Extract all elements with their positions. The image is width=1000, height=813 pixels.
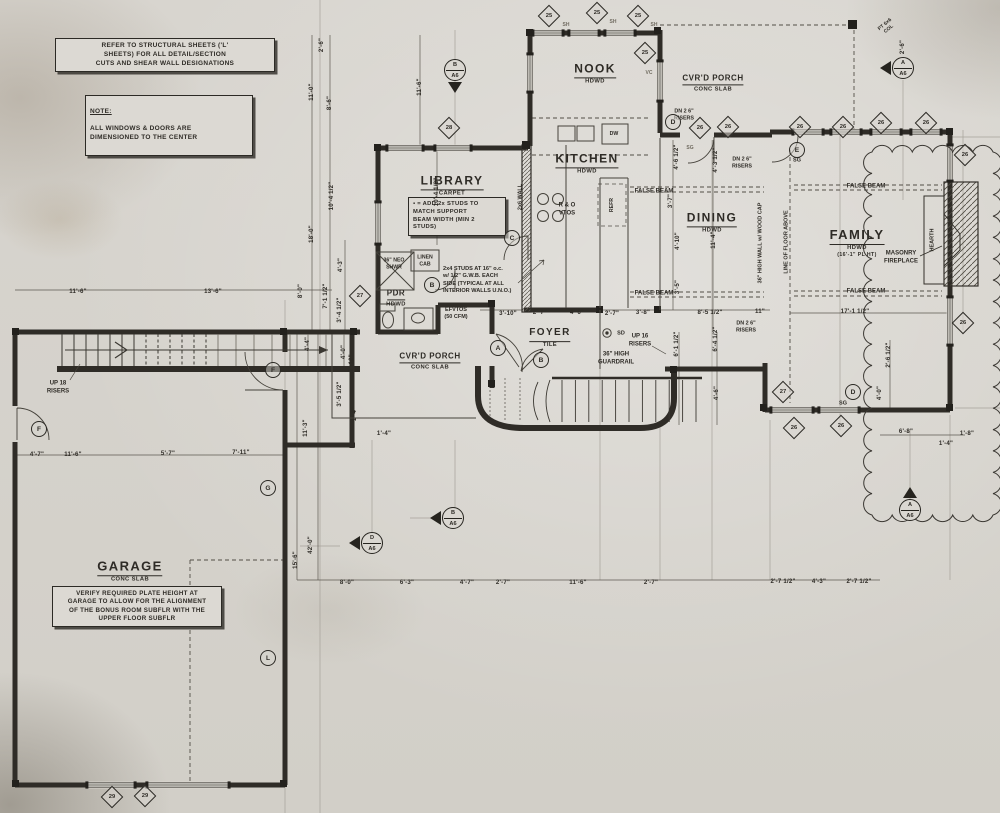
- window-tag-number: 26: [958, 148, 972, 162]
- dimension-label: 1'-4": [351, 407, 359, 421]
- annotation: 36" HIGH WALL w/ WOOD CAP: [758, 203, 765, 284]
- door-tag-c: C: [504, 230, 520, 246]
- dimension-label: 4'-7": [30, 451, 44, 459]
- room-floor-finish: CARPET: [421, 190, 484, 197]
- room-name: KITCHEN: [555, 151, 618, 168]
- section-sheet: A6: [362, 546, 382, 552]
- dimension-label: 4'-3": [337, 258, 345, 272]
- dashed-lines: [190, 25, 942, 783]
- section-letter: D: [362, 535, 382, 541]
- section-sheet: A6: [893, 71, 913, 77]
- annotation: VC: [646, 70, 653, 76]
- dimension-label: 6'-3": [400, 579, 414, 587]
- windows-doors-note: NOTE: ALL WINDOWS & DOORS ARE DIMENSIONE…: [85, 95, 253, 156]
- section-letter: A: [900, 502, 920, 508]
- section-marker-b-a6: BA6: [442, 507, 464, 529]
- annotation: 2x6 WALL: [518, 184, 525, 210]
- section-flag: [880, 61, 891, 75]
- door-tag-e: E: [789, 142, 805, 158]
- dimension-label: 3'-10": [499, 310, 517, 318]
- room-name: DINING: [687, 210, 737, 227]
- dimension-label: 3'-7": [667, 194, 675, 208]
- annotation: DW: [610, 131, 619, 138]
- room-name: FOYER: [529, 327, 570, 342]
- dimension-label: 2'-6": [899, 40, 907, 54]
- dimension-label: 4'-6 1/2": [673, 144, 681, 169]
- note-title: NOTE:: [90, 108, 248, 117]
- dimension-label: 3'-8": [636, 309, 650, 317]
- dimension-label: 3'-5 1/2": [336, 381, 344, 406]
- dimension-label: 13'-6": [204, 288, 222, 296]
- annotation: LINEN CAB: [417, 255, 433, 268]
- annotation: 36" NEO SHWR: [384, 258, 405, 271]
- room-label-kitchen: KITCHENHDWD: [555, 148, 618, 175]
- annotation: FALSE BEAM: [635, 290, 674, 298]
- room-floor-finish: HDWD: [830, 245, 885, 252]
- dimension-label: 4'-6": [570, 309, 584, 317]
- dimension-label: 11'-4": [710, 231, 718, 248]
- room-name: GARAGE: [97, 558, 162, 576]
- annotation: UP 16 RISERS: [629, 334, 651, 349]
- room-floor-finish: HDWD: [555, 168, 618, 175]
- dimension-label: 3'-4 1/2": [336, 297, 344, 322]
- dimension-label: 1'-8": [960, 430, 974, 438]
- room-label-cvr-d-porch: CVR'D PORCHCONC SLAB: [399, 344, 460, 371]
- dimension-label: 2'-7 1/2": [770, 578, 795, 586]
- section-flag: [430, 511, 441, 525]
- door-tag-f: F: [31, 421, 47, 437]
- section-sheet: A6: [443, 521, 463, 527]
- room-floor-finish: CONC SLAB: [399, 364, 460, 371]
- annotation: SH: [610, 19, 617, 25]
- dimension-label: 11'-6": [64, 451, 81, 459]
- dimension-label: 2'-7": [496, 579, 510, 587]
- room-label-cvr-d-porch: CVR'D PORCHCONC SLAB: [682, 66, 743, 93]
- dimension-label: 4'-3": [812, 578, 826, 586]
- window-tag-number: 28: [442, 121, 456, 135]
- door-tag-f: F: [265, 362, 281, 378]
- dimension-label: 17'-1 1/2": [841, 308, 870, 316]
- dimension-label: 6'-1 1/2": [673, 331, 681, 356]
- window-tag-number: 25: [542, 9, 556, 23]
- window-tag-number: 25: [590, 6, 604, 20]
- dimension-label: 3'-5": [674, 280, 682, 294]
- room-floor-finish: HDWD: [574, 78, 616, 85]
- floorplan-sheet: REFER TO STRUCTURAL SHEETS ('L' SHEETS) …: [0, 0, 1000, 813]
- dimension-label: 2'-7 1/2": [846, 578, 871, 586]
- annotation: DN 2 6" RISERS: [732, 156, 752, 170]
- dimension-label: 4'-3 1/2": [712, 147, 720, 172]
- window-tag-number: 29: [105, 790, 119, 804]
- annotation: 36" HIGH GUARDRAIL: [598, 352, 634, 367]
- dimension-label: 2'-7": [605, 310, 619, 318]
- room-floor-finish: CONC SLAB: [97, 577, 162, 584]
- dimension-label: 5'-7": [161, 450, 175, 458]
- annotation: SD: [617, 331, 625, 338]
- annotation: SH: [651, 22, 658, 28]
- section-flag: [903, 487, 917, 498]
- room-floor-finish: HDWD: [386, 301, 406, 308]
- room-label-library: LIBRARYCARPET: [421, 170, 484, 197]
- dimension-label: 10'-4 1/2": [433, 178, 441, 207]
- room-name: CVR'D PORCH: [399, 351, 460, 363]
- window-tag-number: 26: [693, 121, 707, 135]
- dimension-label: 11'-6": [416, 78, 424, 95]
- window-tag-number: 26: [834, 419, 848, 433]
- room-label-pdr: PDRHDWD: [386, 281, 406, 308]
- dimension-label: 6'-8": [899, 428, 913, 436]
- door-tag-b: B: [424, 277, 440, 293]
- section-marker-a-a6: AA6: [892, 57, 914, 79]
- dimension-label: 7'-11": [232, 449, 249, 457]
- dimension-label: 4'-0": [876, 386, 884, 400]
- stud-note: ▪ = ADD 2x STUDS TO MATCH SUPPORT BEAM W…: [408, 197, 506, 236]
- dimension-label: 2'-7": [533, 309, 547, 317]
- window-tag-number: 26: [836, 120, 850, 134]
- dimension-label: 8'-6": [326, 96, 334, 110]
- revision-cloud: [864, 145, 1000, 521]
- annotation: REFR: [609, 198, 616, 212]
- annotation: SG: [793, 158, 801, 165]
- annotation: EFVTOS (50 CFM): [444, 307, 467, 321]
- dimension-label: 11'-6": [569, 579, 586, 587]
- window-tag-number: 27: [776, 385, 790, 399]
- door-tag-d: D: [845, 384, 861, 400]
- dimension-label: 8'-5 1/2": [697, 309, 722, 317]
- dimension-label: 2'-6 1/2": [885, 342, 893, 367]
- section-sheet: A6: [900, 513, 920, 519]
- interior-walls-note: 2x4 STUDS AT 16" o.c. w/ 1/2" G.W.B. EAC…: [443, 266, 527, 295]
- door-tag-g: G: [260, 480, 276, 496]
- annotation: LINE OF FLOOR ABOVE: [784, 210, 791, 273]
- annotation: SH: [563, 22, 570, 28]
- dimension-label: 1'-4": [377, 430, 391, 438]
- dimension-label: 11'-3": [302, 419, 310, 436]
- room-label-family: FAMILYHDWD(16'-1" PL HT): [830, 225, 885, 259]
- dimension-label: 8'-0": [340, 579, 354, 587]
- annotation: HEARTH: [930, 229, 937, 252]
- section-flag: [349, 536, 360, 550]
- dimension-label: 10'-4 1/2": [328, 182, 336, 211]
- section-letter: A: [893, 60, 913, 66]
- dimension-label: 4'-6": [713, 386, 721, 400]
- dimension-label: 1'-4": [939, 440, 953, 448]
- dimension-label: 6'-10": [348, 354, 356, 372]
- dimension-label: 4'-7": [460, 579, 474, 587]
- room-floor-finish: CONC SLAB: [682, 86, 743, 93]
- window-tag-number: 26: [793, 120, 807, 134]
- section-marker-d-a6: DA6: [361, 532, 383, 554]
- window-tag-number: 26: [874, 116, 888, 130]
- window-tag-number: 26: [919, 116, 933, 130]
- door-tag-d: D: [665, 114, 681, 130]
- room-floor-finish: TILE: [529, 342, 570, 349]
- room-name: FAMILY: [830, 227, 885, 245]
- window-tag-number: 29: [138, 789, 152, 803]
- room-plate-height: (16'-1" PL HT): [830, 252, 885, 259]
- window-tag-number: 26: [787, 421, 801, 435]
- room-label-garage: GARAGECONC SLAB: [97, 556, 162, 583]
- garage-note: VERIFY REQUIRED PLATE HEIGHT AT GARAGE T…: [52, 586, 222, 627]
- dimension-label: 4'-0": [340, 345, 348, 359]
- annotation: MASONRY FIREPLACE: [884, 251, 918, 266]
- room-name: CVR'D PORCH: [682, 73, 743, 85]
- room-label-nook: NOOKHDWD: [574, 58, 616, 85]
- annotation: SG: [839, 401, 847, 408]
- annotation: R & O VTOS: [559, 203, 576, 218]
- annotation: FALSE BEAM: [847, 288, 886, 296]
- window-tag-number: 25: [638, 46, 652, 60]
- annotation: SG: [686, 145, 693, 151]
- section-letter: B: [443, 510, 463, 516]
- dimension-label: 11": [755, 308, 765, 316]
- room-name: PDR: [387, 288, 405, 300]
- annotation: UP 18 RISERS: [47, 381, 69, 396]
- section-letter: B: [445, 62, 465, 68]
- door-tag-l: L: [260, 650, 276, 666]
- door-tag-b: B: [533, 352, 549, 368]
- annotation: FALSE BEAM: [847, 183, 886, 191]
- dimension-label: 11'-0": [308, 83, 316, 100]
- window-tag-number: 27: [353, 289, 367, 303]
- dimension-label: 4'-4": [304, 337, 312, 351]
- dimension-label: 6'-4 1/2": [712, 326, 720, 351]
- dimension-label: 4'-10": [674, 232, 682, 250]
- dimension-label: 42'-0": [307, 536, 315, 554]
- section-flag: [448, 82, 462, 93]
- dimension-label: 15'-6": [292, 551, 300, 569]
- room-label-foyer: FOYERTILE: [529, 321, 570, 349]
- dimension-label: 2'-6": [318, 38, 326, 52]
- structural-note: REFER TO STRUCTURAL SHEETS ('L' SHEETS) …: [55, 38, 275, 72]
- note-body: ALL WINDOWS & DOORS ARE DIMENSIONED TO T…: [90, 125, 248, 143]
- window-tag-number: 25: [631, 9, 645, 23]
- window-tag-number: 26: [721, 120, 735, 134]
- dimension-label: 18'-0": [308, 225, 316, 243]
- section-marker-b-a6: BA6: [444, 59, 466, 81]
- section-sheet: A6: [445, 73, 465, 79]
- dimension-label: 7'-1 1/2": [322, 283, 330, 308]
- annotation: DN 2 6" RISERS: [736, 320, 756, 334]
- annotation: SG: [669, 133, 677, 140]
- dimension-label: 11'-6": [69, 288, 86, 296]
- door-tag-a: A: [490, 340, 506, 356]
- dimension-label: 8'-0": [297, 284, 305, 298]
- room-name: NOOK: [574, 61, 616, 78]
- dimension-label: 2'-7": [644, 579, 658, 587]
- section-marker-a-a6: AA6: [899, 499, 921, 521]
- window-tag-number: 26: [956, 316, 970, 330]
- room-name: LIBRARY: [421, 173, 484, 190]
